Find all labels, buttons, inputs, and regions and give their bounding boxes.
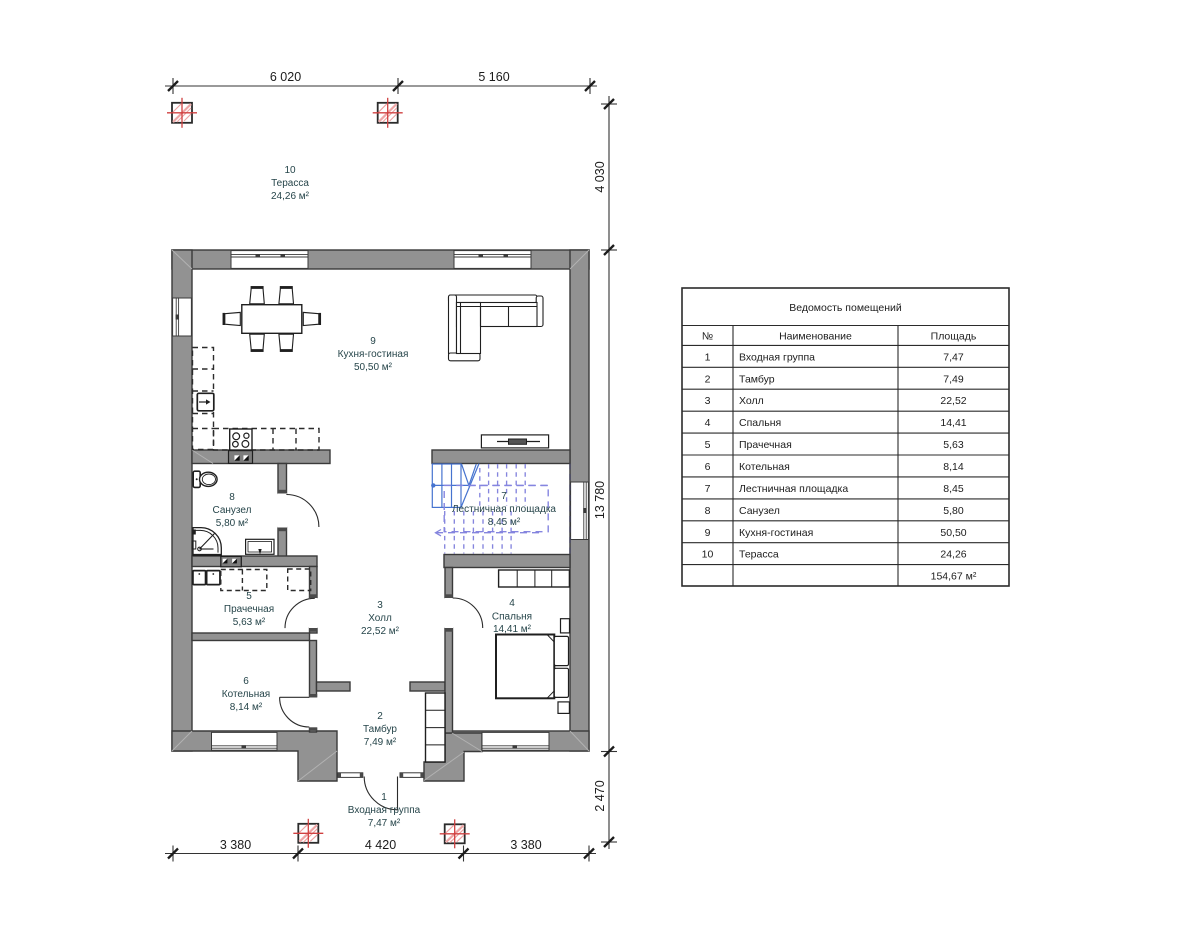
svg-text:22,52: 22,52	[940, 395, 966, 407]
svg-text:6: 6	[243, 676, 249, 687]
svg-text:4 030: 4 030	[593, 161, 607, 192]
svg-text:14,41 м²: 14,41 м²	[493, 624, 532, 635]
svg-text:5,63: 5,63	[943, 439, 964, 451]
svg-text:6: 6	[705, 461, 711, 473]
svg-text:7: 7	[705, 483, 711, 495]
svg-text:Прачечная: Прачечная	[739, 439, 792, 451]
svg-text:Холл: Холл	[368, 613, 392, 624]
svg-text:9: 9	[370, 336, 376, 347]
svg-text:Прачечная: Прачечная	[224, 604, 274, 615]
svg-text:5,63 м²: 5,63 м²	[233, 617, 266, 628]
svg-text:8: 8	[229, 492, 235, 503]
svg-text:9: 9	[705, 527, 711, 539]
svg-text:24,26 м²: 24,26 м²	[271, 191, 310, 202]
svg-text:7,49: 7,49	[943, 373, 964, 385]
svg-text:5 160: 5 160	[478, 70, 509, 84]
svg-text:24,26: 24,26	[940, 549, 966, 561]
svg-text:10: 10	[702, 549, 714, 561]
svg-text:7,49 м²: 7,49 м²	[364, 737, 397, 748]
svg-text:Входная группа: Входная группа	[739, 351, 815, 363]
svg-text:5: 5	[705, 439, 711, 451]
svg-text:1: 1	[705, 351, 711, 363]
svg-text:50,50 м²: 50,50 м²	[354, 362, 393, 373]
svg-text:2: 2	[377, 711, 383, 722]
svg-text:7,47 м²: 7,47 м²	[368, 818, 401, 829]
svg-text:5,80: 5,80	[943, 505, 964, 517]
svg-text:13 780: 13 780	[593, 481, 607, 519]
svg-text:Котельная: Котельная	[739, 461, 790, 473]
svg-text:7,47: 7,47	[943, 351, 964, 363]
svg-text:3: 3	[705, 395, 711, 407]
svg-text:Кухня-гостиная: Кухня-гостиная	[739, 527, 813, 539]
svg-text:Лестничная площадка: Лестничная площадка	[739, 483, 848, 495]
svg-text:Площадь: Площадь	[931, 331, 977, 343]
svg-text:Терасса: Терасса	[739, 549, 779, 561]
svg-text:Ведомость помещений: Ведомость помещений	[789, 302, 902, 314]
svg-text:8,45 м²: 8,45 м²	[488, 517, 521, 528]
svg-text:8: 8	[705, 505, 711, 517]
svg-text:2: 2	[705, 373, 711, 385]
svg-text:3: 3	[377, 600, 383, 611]
svg-text:14,41: 14,41	[940, 417, 966, 429]
svg-text:Холл: Холл	[739, 395, 764, 407]
svg-text:10: 10	[284, 165, 296, 176]
svg-text:Терасса: Терасса	[271, 178, 309, 189]
svg-text:8,45: 8,45	[943, 483, 964, 495]
svg-text:6 020: 6 020	[270, 70, 301, 84]
svg-text:Санузел: Санузел	[213, 505, 252, 516]
svg-text:№: №	[702, 331, 713, 343]
svg-text:7: 7	[501, 491, 507, 502]
svg-text:154,67 м²: 154,67 м²	[931, 571, 977, 583]
svg-text:3 380: 3 380	[220, 838, 251, 852]
svg-text:Спальня: Спальня	[739, 417, 781, 429]
svg-text:5: 5	[246, 591, 252, 602]
svg-text:8,14 м²: 8,14 м²	[230, 702, 263, 713]
svg-text:Котельная: Котельная	[222, 689, 270, 700]
svg-text:3 380: 3 380	[510, 838, 541, 852]
svg-text:4: 4	[509, 598, 515, 609]
svg-text:Спальня: Спальня	[492, 612, 532, 623]
svg-text:8,14: 8,14	[943, 461, 964, 473]
svg-text:2 470: 2 470	[593, 780, 607, 811]
svg-text:5,80 м²: 5,80 м²	[216, 518, 249, 529]
svg-text:Наименование: Наименование	[779, 331, 852, 343]
svg-text:22,52 м²: 22,52 м²	[361, 626, 400, 637]
svg-text:Входная группа: Входная группа	[348, 805, 421, 816]
svg-text:Тамбур: Тамбур	[363, 723, 397, 735]
svg-text:Кухня-гостиная: Кухня-гостиная	[338, 349, 409, 360]
svg-text:Лестничная площадка: Лестничная площадка	[452, 504, 556, 515]
svg-text:Тамбур: Тамбур	[739, 373, 775, 385]
svg-text:Санузел: Санузел	[739, 505, 780, 517]
svg-text:50,50: 50,50	[940, 527, 966, 539]
svg-text:4: 4	[705, 417, 711, 429]
svg-text:4 420: 4 420	[365, 838, 396, 852]
svg-text:1: 1	[381, 792, 387, 803]
